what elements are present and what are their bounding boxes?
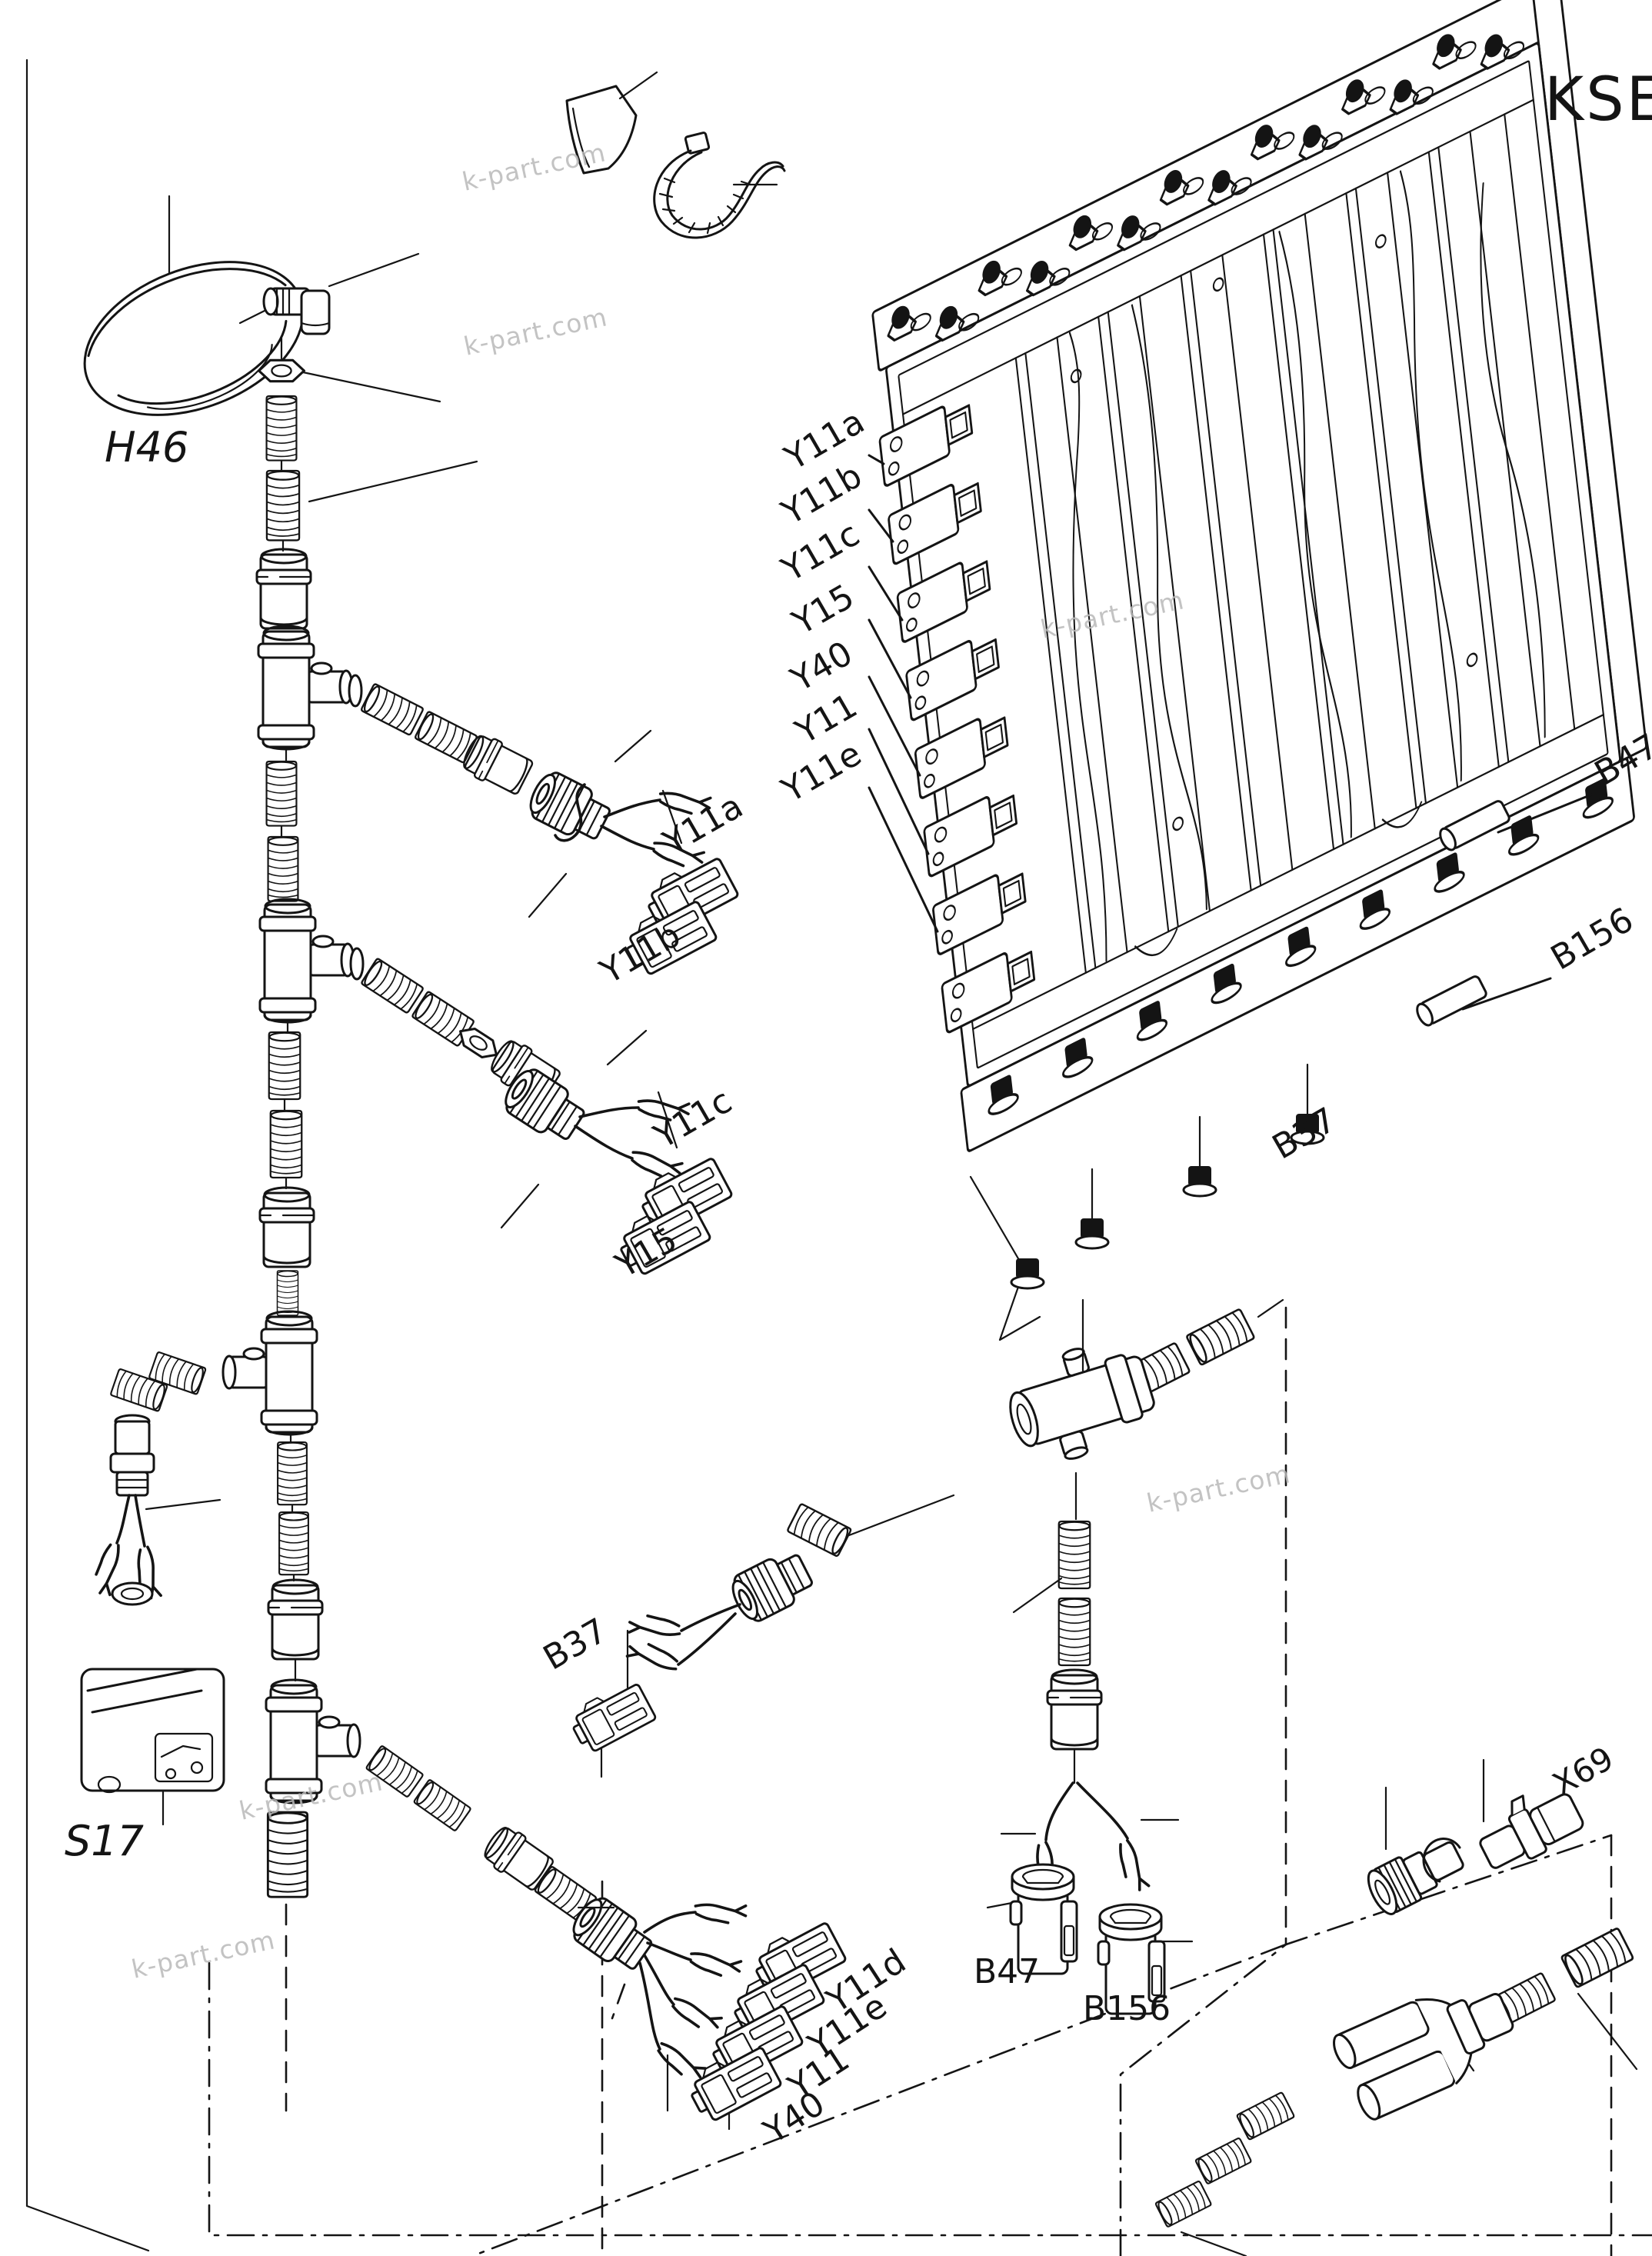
port-label-y11c: Y11c xyxy=(774,515,866,590)
harness-branch-2: Y11c Y15 xyxy=(351,948,738,1286)
watermark: k-part.com xyxy=(1144,1458,1294,1518)
watermark: k-part.com xyxy=(461,302,611,362)
branch2-label-y11c: Y11c xyxy=(647,1081,738,1157)
exploded-parts-diagram: H46 Y11a Y11b xyxy=(0,0,1652,2256)
b47-b156-branch: B47 B156 xyxy=(974,1300,1283,2028)
valve-block xyxy=(865,0,1652,1340)
block-bottom-label-b37: B37 xyxy=(1266,1100,1343,1167)
port-label-y11a: Y11a xyxy=(778,402,871,478)
harness-branch-3: Y11d Y11e Y11 Y40 xyxy=(366,1745,913,2152)
cable-tie xyxy=(654,132,784,238)
port-label-y40: Y40 xyxy=(784,634,859,700)
watermark: k-part.com xyxy=(460,137,609,197)
tee-fitting xyxy=(998,1331,1163,1473)
watermark: k-part.com xyxy=(129,1924,278,1984)
horn-label: H46 xyxy=(105,423,188,472)
sheet-title-code: KSE xyxy=(1544,65,1652,135)
switch-s17-branch: S17 xyxy=(65,1351,224,1865)
block-side-label-b156: B156 xyxy=(1544,900,1640,978)
harness-branch-1: Y11a Y11b xyxy=(349,675,750,992)
port-label-y11e: Y11e xyxy=(774,734,868,811)
b37-cable: B37 xyxy=(537,1495,954,1777)
parts-diagram-page: H46 Y11a Y11b xyxy=(0,0,1652,2256)
y-manifold xyxy=(1330,1968,1525,2123)
x69-label: X69 xyxy=(1547,1739,1620,1804)
left-fitting-chain xyxy=(223,254,477,2111)
pressure-sensor-body xyxy=(111,1415,154,1495)
b37-cable-label: B37 xyxy=(537,1611,614,1678)
bayonet-connector xyxy=(1363,1833,1469,1918)
plug-b47-label: B47 xyxy=(974,1952,1040,1991)
switch-s17-housing xyxy=(82,1669,224,1824)
x69-coupling-group: X69 xyxy=(1155,1739,1637,2256)
port-label-y11b: Y11b xyxy=(774,456,868,533)
plug-b156-label: B156 xyxy=(1083,1989,1171,2028)
switch-label: S17 xyxy=(65,1817,144,1865)
